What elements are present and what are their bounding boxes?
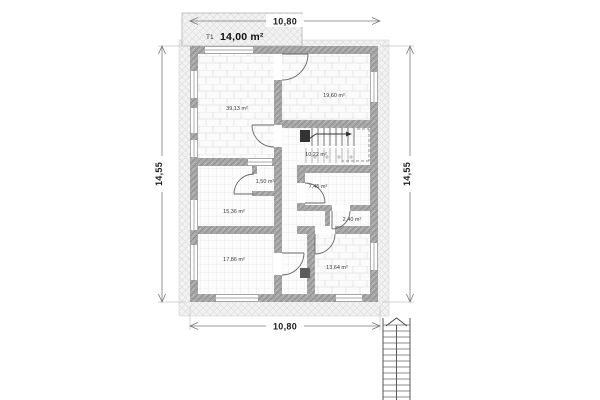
window-left-3 [190,140,198,157]
terrace-area-label: 14,00 m² [220,31,264,43]
window-bottom-1 [216,294,258,302]
glazed-partition [248,158,272,166]
room-label-closet: 2,40 m² [343,217,362,223]
room-label-bottom-right: 13,64 m² [326,265,348,271]
window-bottom-2 [336,294,362,302]
room-label-bottom-left: 17,86 m² [223,257,245,263]
room-label-stair-hall: 10,22 m² [305,152,327,158]
window-right-1 [370,72,378,102]
window-left-5 [190,245,198,280]
pillar [300,268,310,278]
dimension-top-label: 10,80 [273,17,297,27]
room-label-bath: 7,45 m² [309,184,328,190]
room-label-mid-left: 15,36 m² [223,209,245,215]
window-top [205,46,253,54]
dimension-bottom: 10,80 [190,319,380,332]
dimension-right: 14,55 [402,46,417,302]
floor-plan-drawing: T1 14,00 m² [0,0,600,400]
stair-newel-post [300,130,310,142]
dimension-right-label: 14,55 [402,162,412,186]
terrace-code-label: T1 [206,34,214,41]
external-staircase [383,318,410,400]
window-left-1 [190,71,198,98]
room-label-top-right: 19,60 m² [323,93,345,99]
window-right-2 [370,243,378,270]
room-label-wc: 1,50 m² [256,179,275,185]
room-label-top-left: 39,13 m² [226,106,248,112]
window-left-2 [190,108,198,133]
floor-plan-canvas: T1 14,00 m² [0,0,600,400]
dimension-left-label: 14,55 [154,162,164,186]
window-left-4 [190,200,198,230]
dimension-bottom-label: 10,80 [273,322,297,332]
dimension-left: 14,55 [154,46,169,302]
